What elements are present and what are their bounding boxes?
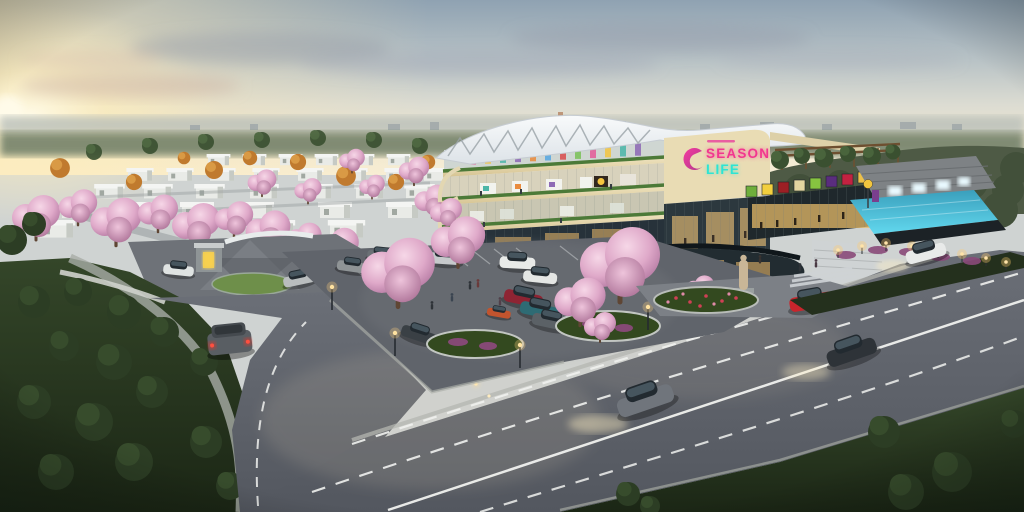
vignette-overlay <box>0 0 1024 512</box>
scene-rendering: SEASON SEASON LIFE LIFE <box>0 0 1024 512</box>
rendering-svg: SEASON SEASON LIFE LIFE <box>0 0 1024 512</box>
